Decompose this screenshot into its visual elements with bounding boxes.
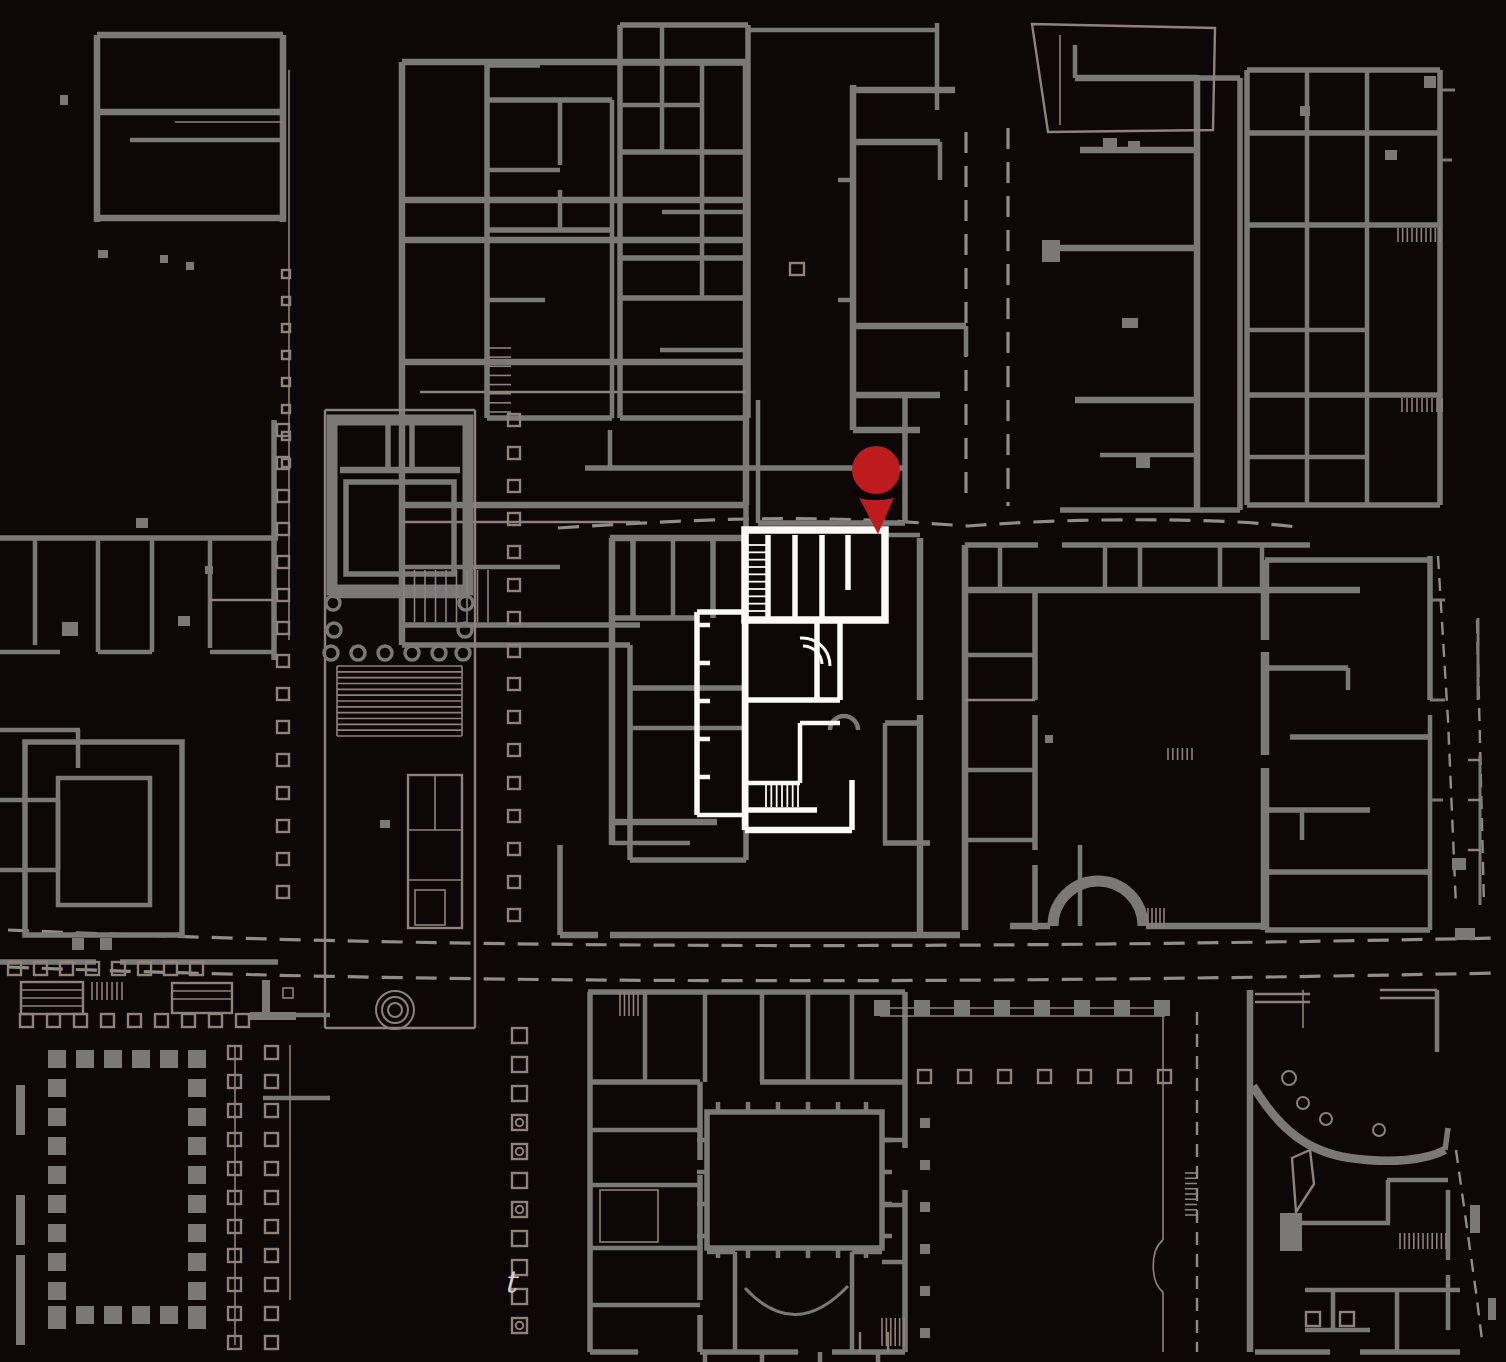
- temple: [289, 70, 475, 1028]
- block-top-left: [97, 35, 283, 222]
- site-plan-map: t: [0, 0, 1506, 1362]
- column-circles: [324, 596, 1385, 1136]
- block-mid-right: [965, 545, 1445, 930]
- block-comb-west: [838, 85, 966, 430]
- block-comb-east: [1042, 45, 1240, 512]
- street-dashes: [8, 128, 1498, 1352]
- highlighted-building[interactable]: [697, 530, 885, 830]
- pin-head: [852, 446, 900, 494]
- stair-hatches: [92, 228, 1446, 1346]
- right-edge-walls: [1468, 618, 1480, 905]
- block-mid-left: [0, 420, 278, 962]
- pompeii-plan-svg: t: [0, 0, 1506, 1362]
- curved-building: [1250, 990, 1460, 1352]
- peristyle-house: [588, 992, 905, 1362]
- block-around-highlight: [560, 535, 960, 935]
- bottom-street-zone: [880, 1008, 1165, 1352]
- block-top-right: [1032, 24, 1455, 505]
- street-label-t: t: [504, 1264, 519, 1299]
